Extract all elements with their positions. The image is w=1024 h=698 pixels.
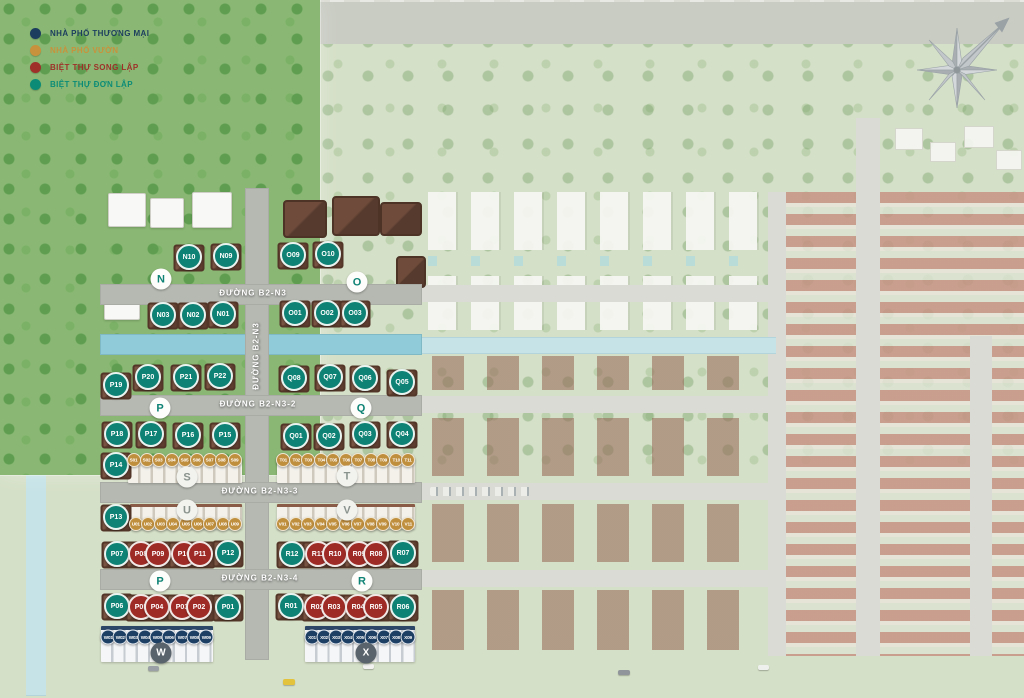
lot-marker-p15[interactable]: P15: [212, 422, 238, 448]
lot-marker-q03[interactable]: Q03: [352, 421, 378, 447]
lot-marker-label: S04: [168, 457, 176, 462]
lot-marker-label: V11: [404, 521, 412, 526]
lot-marker-label: Q07: [323, 374, 336, 381]
lot-marker-r12[interactable]: R12: [279, 541, 305, 567]
lot-marker-label: Q04: [395, 431, 408, 438]
legend-item-label: NHÀ PHỐ THƯƠNG MẠI: [50, 29, 149, 38]
lot-marker-u07[interactable]: U07: [203, 517, 217, 531]
lot-marker-label: X06: [368, 634, 376, 639]
lot-marker-t01[interactable]: T01: [276, 453, 290, 467]
faded-road: [420, 285, 780, 302]
faded-villa-row: [428, 192, 768, 250]
section-badge-x: X: [356, 643, 377, 664]
lot-marker-label: U08: [219, 521, 227, 526]
lot-marker-v07[interactable]: V07: [351, 517, 365, 531]
lot-marker-label: Q06: [358, 375, 371, 382]
lot-marker-label: X05: [356, 634, 364, 639]
faded-road: [768, 192, 786, 656]
lot-marker-label: R05: [370, 604, 383, 611]
lot-marker-label: X08: [392, 634, 400, 639]
lot-marker-label: O01: [288, 310, 301, 317]
lot-marker-label: S07: [206, 457, 214, 462]
lot-marker-n10[interactable]: N10: [176, 244, 202, 270]
lot-marker-label: T07: [354, 457, 362, 462]
lot-marker-p02[interactable]: P02: [186, 594, 212, 620]
section-badge-r: R: [352, 571, 373, 592]
section-badge-v: V: [337, 500, 358, 521]
parked-cars: [430, 487, 530, 496]
lot-marker-label: T02: [292, 457, 300, 462]
lot-marker-label: P20: [142, 374, 154, 381]
canal: [420, 337, 776, 354]
lot-marker-q07[interactable]: Q07: [317, 364, 343, 390]
lot-marker-o03[interactable]: O03: [342, 300, 368, 326]
lot-marker-label: U09: [231, 521, 239, 526]
faded-villa-row: [432, 356, 762, 390]
lot-marker-r03[interactable]: R03: [321, 594, 347, 620]
villa-roof: [332, 196, 380, 236]
lot-marker-label: Q02: [322, 433, 335, 440]
lot-marker-r01[interactable]: R01: [278, 593, 304, 619]
lot-marker-label: R01: [285, 603, 298, 610]
villa-building: [192, 192, 232, 228]
road-label-đường-b2-n3: ĐƯỜNG B2-N3: [219, 289, 287, 298]
lot-marker-label: T08: [367, 457, 375, 462]
lot-marker-n01[interactable]: N01: [210, 301, 236, 327]
lot-marker-label: R10: [329, 551, 342, 558]
lot-marker-label: X09: [404, 634, 412, 639]
lot-marker-n09[interactable]: N09: [213, 243, 239, 269]
lot-marker-label: S06: [193, 457, 201, 462]
lot-marker-label: U01: [132, 521, 140, 526]
lot-marker-q04[interactable]: Q04: [389, 421, 415, 447]
lot-marker-o09[interactable]: O09: [280, 242, 306, 268]
lot-marker-v09[interactable]: V09: [376, 517, 390, 531]
section-badge-s: S: [177, 467, 198, 488]
lot-marker-p20[interactable]: P20: [135, 364, 161, 390]
lot-marker-label: X02: [320, 634, 328, 639]
lot-marker-label: V03: [304, 521, 312, 526]
lot-marker-label: P19: [110, 382, 122, 389]
lot-marker-label: X03: [332, 634, 340, 639]
faded-villa-row: [432, 504, 762, 562]
legend-item-song-lap: BIỆT THỰ SONG LẬP: [30, 62, 149, 73]
villa-building: [108, 193, 146, 227]
lot-marker-label: X01: [308, 634, 316, 639]
lot-marker-p21[interactable]: P21: [173, 364, 199, 390]
lot-marker-label: X07: [380, 634, 388, 639]
road-label-đường-b2-n3-2: ĐƯỜNG B2-N3-2: [220, 400, 297, 409]
lot-marker-q08[interactable]: Q08: [281, 365, 307, 391]
lot-marker-label: R12: [286, 551, 299, 558]
lot-marker-v01[interactable]: V01: [276, 517, 290, 531]
legend: NHÀ PHỐ THƯƠNG MẠINHÀ PHỐ VƯỜNBIỆT THỰ S…: [30, 28, 149, 96]
lot-marker-label: P07: [111, 551, 123, 558]
section-badge-w: W: [151, 643, 172, 664]
lot-marker-label: T03: [304, 457, 312, 462]
lot-marker-label: W06: [164, 634, 173, 639]
lot-marker-label: S02: [143, 457, 151, 462]
section-badge-p: P: [150, 398, 171, 419]
faded-road: [970, 336, 992, 656]
lot-marker-q02[interactable]: Q02: [316, 423, 342, 449]
lot-marker-label: W08: [189, 634, 198, 639]
legend-item-don-lap: BIỆT THỰ ĐƠN LẬP: [30, 79, 149, 90]
lot-marker-label: U03: [157, 521, 165, 526]
legend-item-label: BIỆT THỰ ĐƠN LẬP: [50, 80, 133, 89]
faded-villa-row: [432, 418, 762, 476]
section-badge-t: T: [337, 466, 358, 487]
lot-marker-t05[interactable]: T05: [326, 453, 340, 467]
lot-marker-label: R08: [370, 551, 383, 558]
car-icon: [618, 670, 630, 675]
lot-marker-label: W03: [128, 634, 137, 639]
legend-color-dot: [30, 79, 41, 90]
legend-item-label: NHÀ PHỐ VƯỜN: [50, 46, 119, 55]
lot-marker-label: P12: [222, 550, 234, 557]
lot-marker-p13[interactable]: P13: [103, 504, 129, 530]
lot-marker-label: Q05: [395, 379, 408, 386]
master-plan-map: ĐƯỜNG B2-N3ĐƯỜNG B2-N3ĐƯỜNG B2-N3-2ĐƯỜNG…: [0, 0, 1024, 698]
lot-marker-o01[interactable]: O01: [282, 300, 308, 326]
legend-item-thuong-mai: NHÀ PHỐ THƯƠNG MẠI: [30, 28, 149, 39]
lot-marker-label: W02: [115, 634, 124, 639]
lot-marker-label: N03: [157, 312, 170, 319]
section-badge-q: Q: [351, 398, 372, 419]
lot-marker-label: W09: [201, 634, 210, 639]
lot-marker-label: P04: [151, 604, 163, 611]
lot-marker-label: Q08: [287, 375, 300, 382]
lot-marker-label: W04: [140, 634, 149, 639]
villa-roof: [380, 202, 422, 236]
lot-marker-o02[interactable]: O02: [314, 300, 340, 326]
lot-marker-r08[interactable]: R08: [363, 541, 389, 567]
lot-marker-label: W07: [177, 634, 186, 639]
lot-marker-label: U06: [194, 521, 202, 526]
lot-marker-label: V06: [342, 521, 350, 526]
villa-roof: [283, 200, 327, 238]
lot-marker-label: U02: [144, 521, 152, 526]
faded-building: [964, 126, 994, 148]
lot-marker-s08[interactable]: S08: [215, 453, 229, 467]
lot-marker-p19[interactable]: P19: [103, 372, 129, 398]
road-label-đường-b2-n3-3: ĐƯỜNG B2-N3-3: [222, 487, 299, 496]
faded-road: [856, 118, 880, 656]
lot-marker-label: S01: [130, 457, 138, 462]
lot-marker-label: N02: [187, 312, 200, 319]
lot-marker-label: U05: [182, 521, 190, 526]
lot-marker-r07[interactable]: R07: [390, 540, 416, 566]
lot-marker-label: T09: [379, 457, 387, 462]
lot-marker-label: Q03: [358, 431, 371, 438]
lot-marker-label: T04: [317, 457, 325, 462]
lot-marker-label: R03: [328, 604, 341, 611]
lot-marker-label: U07: [206, 521, 214, 526]
lot-marker-t09[interactable]: T09: [376, 453, 390, 467]
lot-marker-label: P13: [110, 514, 122, 521]
lot-marker-label: O09: [286, 252, 299, 259]
lot-marker-p06[interactable]: P06: [104, 593, 130, 619]
lot-marker-label: P09: [152, 551, 164, 558]
lot-marker-label: T11: [404, 457, 411, 462]
lot-marker-u02[interactable]: U02: [141, 517, 155, 531]
lot-marker-u04[interactable]: U04: [166, 517, 180, 531]
lot-marker-s09[interactable]: S09: [228, 453, 242, 467]
lot-marker-q05[interactable]: Q05: [389, 369, 415, 395]
legend-item-vuon: NHÀ PHỐ VƯỜN: [30, 45, 149, 56]
lot-marker-label: N10: [183, 254, 196, 261]
lot-marker-label: Q01: [289, 433, 302, 440]
lot-marker-v11[interactable]: V11: [401, 517, 415, 531]
lot-marker-p04[interactable]: P04: [144, 594, 170, 620]
lot-marker-p11[interactable]: P11: [187, 541, 213, 567]
lot-marker-label: P11: [194, 551, 206, 558]
section-badge-o: O: [347, 272, 368, 293]
lot-marker-label: X04: [344, 634, 352, 639]
lot-marker-label: P17: [145, 431, 157, 438]
lot-marker-label: V08: [367, 521, 375, 526]
lot-marker-p14[interactable]: P14: [103, 452, 129, 478]
car-icon: [363, 664, 374, 669]
lot-marker-label: R07: [397, 550, 410, 557]
faded-building: [996, 150, 1022, 170]
lot-marker-p01[interactable]: P01: [215, 594, 241, 620]
lot-marker-label: P02: [193, 604, 205, 611]
lot-marker-p17[interactable]: P17: [138, 421, 164, 447]
lot-marker-label: P18: [111, 431, 123, 438]
road-label-đường-b2-n3-v: ĐƯỜNG B2-N3: [252, 322, 261, 390]
lot-marker-label: U04: [169, 521, 177, 526]
lot-marker-label: W01: [103, 634, 112, 639]
lot-marker-r10[interactable]: R10: [322, 541, 348, 567]
legend-color-dot: [30, 62, 41, 73]
pool-strip: [428, 256, 768, 266]
lot-marker-label: N01: [217, 311, 230, 318]
road-label-đường-b2-n3-4: ĐƯỜNG B2-N3-4: [222, 574, 299, 583]
section-badge-u: U: [177, 500, 198, 521]
lot-marker-p09[interactable]: P09: [145, 541, 171, 567]
lot-marker-s04[interactable]: S04: [165, 453, 179, 467]
lot-marker-v05[interactable]: V05: [326, 517, 340, 531]
lot-marker-label: V05: [329, 521, 337, 526]
lot-marker-s01[interactable]: S01: [127, 453, 141, 467]
legend-color-dot: [30, 28, 41, 39]
lot-marker-label: P01: [222, 604, 234, 611]
lot-marker-label: P15: [219, 432, 231, 439]
lot-marker-label: O10: [321, 251, 334, 258]
lot-marker-label: P14: [110, 462, 122, 469]
car-icon: [758, 665, 769, 670]
section-badge-n: N: [151, 269, 172, 290]
faded-road: [420, 396, 768, 413]
lot-marker-r06[interactable]: R06: [390, 594, 416, 620]
legend-item-label: BIỆT THỰ SONG LẬP: [50, 63, 139, 72]
lot-marker-label: N09: [220, 253, 233, 260]
lot-marker-t11[interactable]: T11: [401, 453, 415, 467]
lot-marker-label: V10: [392, 521, 400, 526]
lot-marker-label: O03: [348, 310, 361, 317]
lot-marker-label: V09: [379, 521, 387, 526]
lot-marker-label: P21: [180, 374, 192, 381]
lot-marker-label: P22: [214, 373, 226, 380]
car-icon: [283, 679, 295, 685]
lot-marker-label: V01: [279, 521, 287, 526]
lot-marker-label: R06: [397, 604, 410, 611]
lot-marker-p12[interactable]: P12: [215, 540, 241, 566]
lot-marker-p07[interactable]: P07: [104, 541, 130, 567]
lot-marker-label: W05: [152, 634, 161, 639]
faded-road: [420, 570, 768, 587]
lot-marker-x09[interactable]: X09: [401, 630, 416, 645]
lot-marker-label: S09: [231, 457, 239, 462]
lot-marker-label: P06: [111, 603, 123, 610]
car-icon: [148, 666, 159, 671]
legend-color-dot: [30, 45, 41, 56]
lot-marker-u09[interactable]: U09: [228, 517, 242, 531]
lot-marker-q01[interactable]: Q01: [283, 423, 309, 449]
lot-marker-label: T01: [279, 457, 287, 462]
lot-marker-label: V07: [354, 521, 362, 526]
lot-marker-o10[interactable]: O10: [315, 241, 341, 267]
faded-building: [895, 128, 923, 150]
lot-marker-n03[interactable]: N03: [150, 302, 176, 328]
lot-marker-v03[interactable]: V03: [301, 517, 315, 531]
lot-marker-w09[interactable]: W09: [199, 630, 214, 645]
lot-marker-s06[interactable]: S06: [190, 453, 204, 467]
lot-marker-n02[interactable]: N02: [180, 302, 206, 328]
lot-marker-label: O02: [320, 310, 333, 317]
lot-marker-p16[interactable]: P16: [175, 422, 201, 448]
lot-marker-t07[interactable]: T07: [351, 453, 365, 467]
lot-marker-label: V04: [317, 521, 325, 526]
lot-marker-r05[interactable]: R05: [363, 594, 389, 620]
lot-marker-label: T06: [342, 457, 350, 462]
lot-marker-s03[interactable]: S03: [152, 453, 166, 467]
lot-marker-label: T10: [392, 457, 400, 462]
compass-rose: [905, 14, 1017, 114]
faded-building: [930, 142, 956, 162]
lot-marker-label: S08: [218, 457, 226, 462]
section-badge-p: P: [150, 571, 171, 592]
lot-marker-p18[interactable]: P18: [104, 421, 130, 447]
lot-marker-label: V02: [292, 521, 300, 526]
lot-marker-label: T05: [329, 457, 337, 462]
lot-marker-t03[interactable]: T03: [301, 453, 315, 467]
lot-marker-label: S03: [155, 457, 163, 462]
lot-marker-label: P16: [182, 432, 194, 439]
lot-marker-label: S05: [181, 457, 189, 462]
lot-marker-q06[interactable]: Q06: [352, 365, 378, 391]
faded-villa-row: [432, 590, 762, 650]
lot-marker-p22[interactable]: P22: [207, 363, 233, 389]
villa-building: [150, 198, 184, 228]
